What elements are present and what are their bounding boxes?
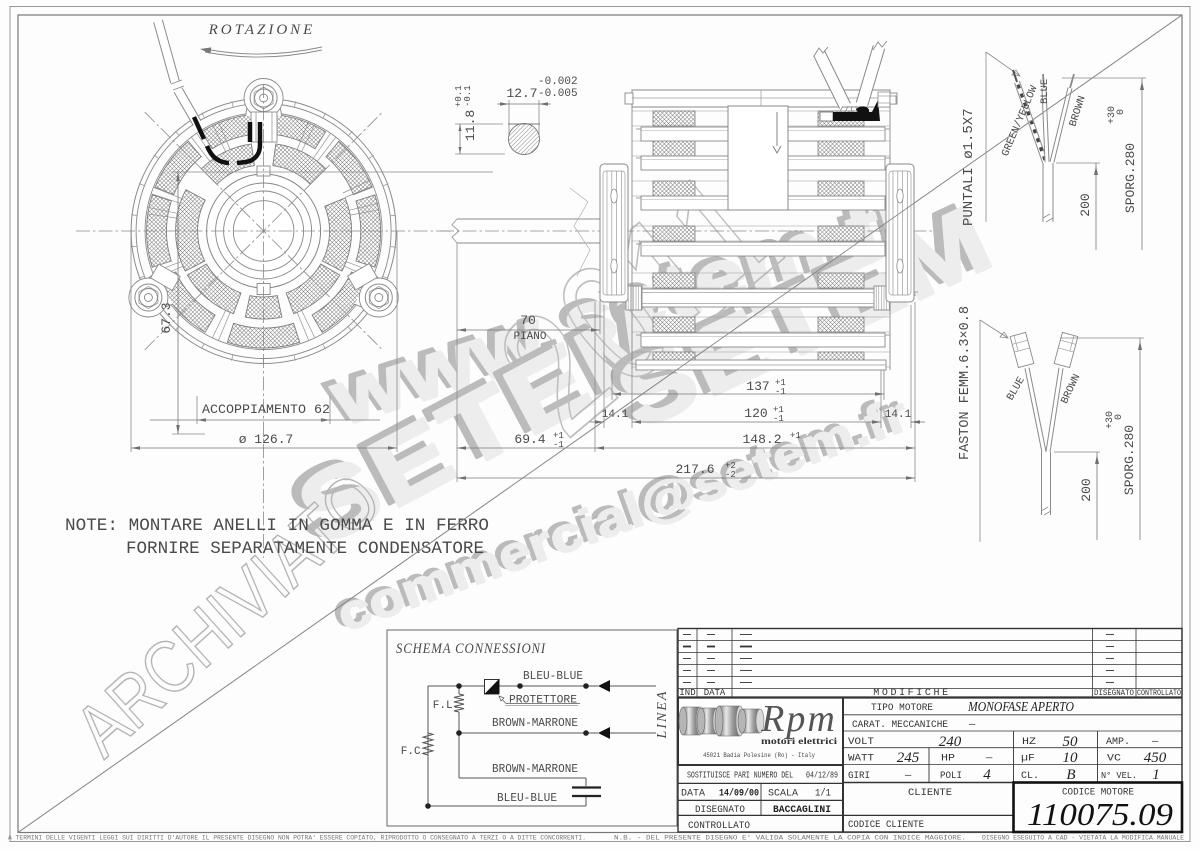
svg-text:240: 240 <box>939 734 962 750</box>
svg-text:MONOFASE APERTO: MONOFASE APERTO <box>967 699 1074 714</box>
svg-text:FASTON FEMM.6.3×0.8: FASTON FEMM.6.3×0.8 <box>958 306 973 460</box>
svg-text:14.1: 14.1 <box>885 409 912 421</box>
svg-text:ACCOPPIAMENTO 62: ACCOPPIAMENTO 62 <box>202 403 330 417</box>
svg-text:DATA: DATA <box>681 788 706 800</box>
svg-text:ROTAZIONE: ROTAZIONE <box>208 22 316 38</box>
svg-text:SCHEMA CONNESSIONI: SCHEMA CONNESSIONI <box>396 641 546 657</box>
svg-text:—: — <box>968 719 976 731</box>
svg-text:CLIENTE: CLIENTE <box>908 787 952 799</box>
svg-text:+1: +1 <box>790 431 801 441</box>
svg-text:-1: -1 <box>775 387 786 397</box>
svg-text:BLUE: BLUE <box>1039 79 1051 104</box>
svg-text:A TERMINI DELLE VIGENTI LEGGI: A TERMINI DELLE VIGENTI LEGGI SUI DIRITT… <box>8 835 586 843</box>
svg-text:WATT: WATT <box>848 753 874 765</box>
svg-text:VC: VC <box>1107 753 1121 765</box>
svg-text:B: B <box>1066 767 1075 783</box>
svg-text:Rpm: Rpm <box>760 698 837 740</box>
svg-text:N.B. - DEL PRESENTE DISEGNO E': N.B. - DEL PRESENTE DISEGNO E' VALIDA SO… <box>614 835 966 843</box>
svg-text:LINEA: LINEA <box>655 690 670 740</box>
svg-text:N° VEL.: N° VEL. <box>1101 770 1137 781</box>
svg-text:TIPO MOTORE: TIPO MOTORE <box>871 702 933 714</box>
svg-text:BROWN-MARRONE: BROWN-MARRONE <box>492 716 578 730</box>
svg-text:µF: µF <box>1021 753 1035 765</box>
svg-text:DISEGNATO: DISEGNATO <box>695 804 745 816</box>
svg-text:-0.002: -0.002 <box>538 76 578 88</box>
svg-text:70: 70 <box>520 313 536 328</box>
svg-text:110075.09: 110075.09 <box>1027 796 1173 832</box>
svg-text:BROWN-MARRONE: BROWN-MARRONE <box>492 762 578 776</box>
svg-text:MODIFICHE: MODIFICHE <box>873 688 950 699</box>
svg-text:11.8: 11.8 <box>463 110 478 141</box>
svg-text:HP: HP <box>941 753 955 765</box>
svg-text:10: 10 <box>1063 750 1079 766</box>
svg-text:SCALA: SCALA <box>768 788 799 800</box>
svg-text:BLEU-BLUE: BLEU-BLUE <box>523 669 583 683</box>
svg-text:FORNIRE SEPARATAMENTE CONDENSA: FORNIRE SEPARATAMENTE CONDENSATORE <box>126 539 484 559</box>
svg-text:CL.: CL. <box>1021 770 1039 782</box>
svg-text:0: 0 <box>1114 414 1125 420</box>
svg-text:-0.005: -0.005 <box>538 88 578 100</box>
svg-text:CARAT. MECCANICHE: CARAT. MECCANICHE <box>852 719 948 731</box>
svg-text:1: 1 <box>1152 767 1160 783</box>
svg-text:DISEGNATO: DISEGNATO <box>1094 688 1134 698</box>
svg-text:CODICE CLIENTE: CODICE CLIENTE <box>848 819 924 831</box>
svg-text:NOTE: MONTARE ANELLI IN GOMMA: NOTE: MONTARE ANELLI IN GOMMA E IN FERRO <box>65 516 489 536</box>
svg-text:SPORG.280: SPORG.280 <box>1122 425 1137 495</box>
svg-text:DISEGNO ESEGUITO A CAD - VIETA: DISEGNO ESEGUITO A CAD - VIETATA LA MODI… <box>982 835 1184 843</box>
svg-text:200: 200 <box>1079 478 1094 501</box>
svg-text:-1: -1 <box>553 440 564 450</box>
svg-text:148.2: 148.2 <box>742 432 781 447</box>
svg-text:—: — <box>1151 736 1159 748</box>
svg-text:AMP.: AMP. <box>1106 736 1130 748</box>
svg-text:CONTROLLATO: CONTROLLATO <box>1137 688 1181 698</box>
svg-text:69.4: 69.4 <box>514 432 545 447</box>
svg-text:CONTROLLATO: CONTROLLATO <box>688 820 750 832</box>
svg-text:1/1: 1/1 <box>815 788 831 800</box>
svg-text:200: 200 <box>1078 193 1093 216</box>
svg-text:-0.1: -0.1 <box>463 85 473 107</box>
svg-text:—: — <box>985 753 993 765</box>
svg-text:245: 245 <box>897 750 920 766</box>
svg-text:IND: IND <box>679 688 695 698</box>
svg-text:motori elettrici: motori elettrici <box>761 737 837 747</box>
svg-text:SOSTITUISCE PARI NUMERO DEL: SOSTITUISCE PARI NUMERO DEL <box>687 771 793 781</box>
svg-text:PROTETTORE: PROTETTORE <box>509 695 577 707</box>
svg-text:VOLT: VOLT <box>848 736 874 748</box>
svg-text:PUNTALI ø1.5X7: PUNTALI ø1.5X7 <box>961 108 977 226</box>
svg-text:BACCAGLINI: BACCAGLINI <box>773 804 831 816</box>
svg-text:POLI: POLI <box>940 770 962 782</box>
svg-text:450: 450 <box>1144 750 1167 766</box>
svg-text:BLEU-BLUE: BLEU-BLUE <box>497 791 557 805</box>
svg-text:217.6: 217.6 <box>675 462 714 477</box>
svg-text:-1: -1 <box>773 414 784 424</box>
svg-text:GIRI: GIRI <box>848 770 870 782</box>
svg-text:SPORG.280: SPORG.280 <box>1123 143 1138 213</box>
svg-text:50: 50 <box>1063 734 1079 750</box>
svg-text:45021 Badia Polesine (Ro) - It: 45021 Badia Polesine (Ro) - Italy <box>703 752 815 759</box>
svg-text:120: 120 <box>744 406 767 421</box>
svg-text:PIANO: PIANO <box>513 331 546 343</box>
svg-text:HZ: HZ <box>1022 736 1036 748</box>
svg-text:-2: -2 <box>725 470 736 480</box>
svg-text:04/12/89: 04/12/89 <box>806 771 838 781</box>
svg-text:ø 126.7: ø 126.7 <box>239 432 294 447</box>
svg-text:—: — <box>904 770 912 782</box>
svg-text:12.7: 12.7 <box>506 86 537 101</box>
svg-text:137: 137 <box>746 379 769 394</box>
svg-text:DATA: DATA <box>704 688 726 698</box>
svg-text:F.L.: F.L. <box>433 700 459 712</box>
svg-text:14/09/00: 14/09/00 <box>719 788 759 800</box>
svg-text:67.3: 67.3 <box>159 302 174 333</box>
svg-text:4: 4 <box>983 767 991 783</box>
svg-text:F.C.: F.C. <box>401 746 427 758</box>
svg-text:0: 0 <box>1116 109 1127 115</box>
